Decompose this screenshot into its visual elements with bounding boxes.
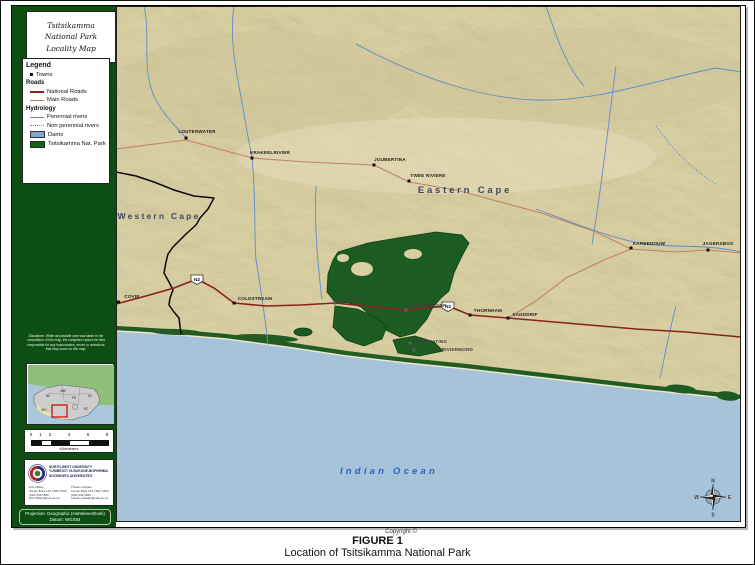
town-marker xyxy=(373,164,376,167)
inset-province-label: EC xyxy=(84,407,89,411)
legend-label: Perennial rivers xyxy=(47,114,87,120)
town-label: LOUTERWATER xyxy=(178,129,216,134)
park-polygon-west xyxy=(294,328,312,336)
datum-line: Datum: WGS84 xyxy=(20,517,110,523)
inset-lesotho xyxy=(72,404,77,409)
non-perennial-river-line-icon xyxy=(30,125,44,126)
town-marker xyxy=(469,314,472,317)
perennial-river-line-icon xyxy=(30,117,44,118)
disclaimer-text: Disclaimer: While all possible care was … xyxy=(27,334,105,352)
main-road-line-icon xyxy=(30,100,44,101)
nwu-logo-icon xyxy=(28,464,47,483)
town-label: JAGERSBOS xyxy=(703,241,734,246)
map-title-line1: Tsitsikamma xyxy=(27,20,115,32)
town-label: STORMSRIVIER xyxy=(409,303,447,308)
inset-province-label: KZ xyxy=(88,394,92,398)
inset-locator-map: NC NW FS KZ EC WC xyxy=(26,363,114,425)
scale-tick: 6 xyxy=(87,432,90,437)
university-credit-box: NORTH-WEST UNIVERSITY YUNIBESITI YA BOKO… xyxy=(24,459,114,506)
projection-note: Projection: Geographic (Hartebeesthoek) … xyxy=(19,509,111,525)
town-label: JOUBERTINA xyxy=(374,157,406,162)
legend-item-national-roads: National Roads xyxy=(26,89,106,95)
scale-segment xyxy=(70,441,89,445)
town-marker xyxy=(413,349,416,352)
town-label: KAREEDOUW xyxy=(633,241,666,246)
town-marker xyxy=(630,247,633,250)
park-hole xyxy=(404,249,422,259)
scale-tick: 4 xyxy=(68,432,71,437)
scale-segment xyxy=(42,441,52,445)
contact-line: Theuns.Jordaan@nwu.ac.za xyxy=(71,497,113,501)
legend-label: Non perennial rivers xyxy=(47,123,99,129)
inset-province-label: WC xyxy=(41,408,47,412)
ocean-label: Indian Ocean xyxy=(340,466,438,477)
figure-number: FIGURE 1 xyxy=(1,535,754,547)
town-marker-icon xyxy=(30,73,33,76)
town-stormsriviermond: STORMSRIVIERMOND xyxy=(413,347,474,352)
town-label: COVIE xyxy=(124,294,139,299)
province-label-western-cape: Western Cape xyxy=(118,211,201,221)
figure-page: Tsitsikamma National Park Locality Map L… xyxy=(0,0,755,565)
contact-column-left: Dirk Cilliers Interne Boks 123, NWU 2520… xyxy=(29,486,69,501)
town-mare-kating: MARE KATING xyxy=(409,339,448,345)
university-name: NORTH-WEST UNIVERSITY YUNIBESITI YA BOKO… xyxy=(49,465,113,478)
scale-unit-label: Kilometers xyxy=(25,446,113,451)
town-marker xyxy=(185,137,188,140)
legend-item-dams: Dams xyxy=(26,131,106,138)
town-marker xyxy=(251,157,254,160)
dam-swatch-icon xyxy=(30,131,45,138)
province-label-eastern-cape: Eastern Cape xyxy=(418,185,512,196)
scale-tick: 1 xyxy=(39,432,42,437)
legend-item-towns: Towns xyxy=(26,72,106,78)
park-hole xyxy=(351,262,373,276)
legend-item-non-perennial: Non perennial rivers xyxy=(26,123,106,129)
town-marker xyxy=(707,249,710,252)
town-marker xyxy=(334,302,337,305)
legend: Legend Towns Roads National Roads Main R… xyxy=(22,58,110,184)
valley-light xyxy=(236,118,656,194)
legend-label: Towns xyxy=(36,72,52,78)
town-marker xyxy=(405,309,408,312)
map-frame: Tsitsikamma National Park Locality Map L… xyxy=(11,5,746,528)
legend-label: National Roads xyxy=(47,89,87,95)
inset-province-label: NC xyxy=(46,394,51,398)
legend-header-hydrology: Hydrology xyxy=(26,106,106,112)
legend-label: Tsitsikamma Nat. Park xyxy=(48,141,106,147)
map-title-line2: National Park xyxy=(27,31,115,43)
legend-header-roads: Roads xyxy=(26,80,106,86)
town-label: SANDDRIF xyxy=(512,312,537,317)
map-title-box: Tsitsikamma National Park Locality Map xyxy=(26,11,116,63)
legend-item-perennial: Perennial rivers xyxy=(26,114,106,120)
scale-tick: 0 xyxy=(30,432,33,437)
town-label: THORNHAM xyxy=(474,308,502,313)
map-title-line3: Locality Map xyxy=(27,43,115,55)
mountain-shade xyxy=(386,28,741,124)
contact-column-right: Theuns Jordaan Interne Boks 123, NWU 252… xyxy=(71,486,113,501)
town-label: KLEINBOS xyxy=(339,296,364,301)
contact-line: Dirk.Cilliers@nwu.ac.za xyxy=(29,497,69,501)
university-name-line: NOORDWES-UNIVERSITEIT xyxy=(49,474,113,478)
map-canvas: N2 N2 LOUTERWATER KRAKEELRIVIER JOUBERTI… xyxy=(116,6,741,522)
scale-segment xyxy=(32,441,42,445)
compass-label-w: W xyxy=(694,495,699,501)
inset-province-label: FS xyxy=(72,396,76,400)
town-label: STORMSRIVIERMOND xyxy=(421,347,474,352)
figure-caption: Location of Tsitsikamma National Park xyxy=(1,547,754,559)
legend-title: Legend xyxy=(26,62,106,69)
town-marker xyxy=(117,301,120,304)
park-hole xyxy=(337,254,349,262)
legend-item-main-roads: Main Roads xyxy=(26,97,106,103)
park-swatch-icon xyxy=(30,141,45,148)
legend-label: Main Roads xyxy=(47,97,78,103)
town-marker xyxy=(507,317,510,320)
compass-label-n: N xyxy=(711,479,715,485)
map-sidebar: Tsitsikamma National Park Locality Map L… xyxy=(12,6,116,527)
national-road-line-icon xyxy=(30,91,44,93)
town-label: KRAKEELRIVIER xyxy=(250,150,291,155)
scale-segment xyxy=(51,441,70,445)
town-label: TWEE RIVIERE xyxy=(410,173,445,178)
legend-item-park: Tsitsikamma Nat. Park xyxy=(26,141,106,148)
scale-tick: 8 xyxy=(106,432,109,437)
town-marker xyxy=(233,302,236,305)
town-label: MARE KATING xyxy=(413,339,447,344)
legend-label: Dams xyxy=(48,132,63,138)
n2-shield-label: N2 xyxy=(194,277,200,283)
university-name-line: YUNIBESITI YA BOKONE-BOPHIRIMA xyxy=(49,469,113,473)
town-label: COLDSTREAM xyxy=(238,296,272,301)
scale-segment xyxy=(89,441,108,445)
town-marker xyxy=(408,180,411,183)
inset-map-canvas: NC NW FS KZ EC WC xyxy=(28,365,114,424)
inset-province-label: NW xyxy=(60,389,65,393)
scale-tick: 2 xyxy=(49,432,52,437)
town-marker xyxy=(409,342,412,345)
scale-bar: 0 1 2 4 6 8 Kilometers xyxy=(24,429,114,453)
